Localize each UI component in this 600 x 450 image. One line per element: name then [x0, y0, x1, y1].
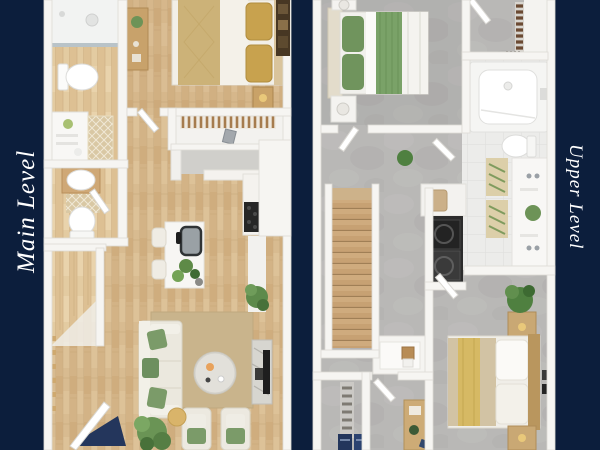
svg-text:Upper Level: Upper Level: [565, 144, 586, 249]
svg-text:Main Level: Main Level: [13, 150, 40, 274]
